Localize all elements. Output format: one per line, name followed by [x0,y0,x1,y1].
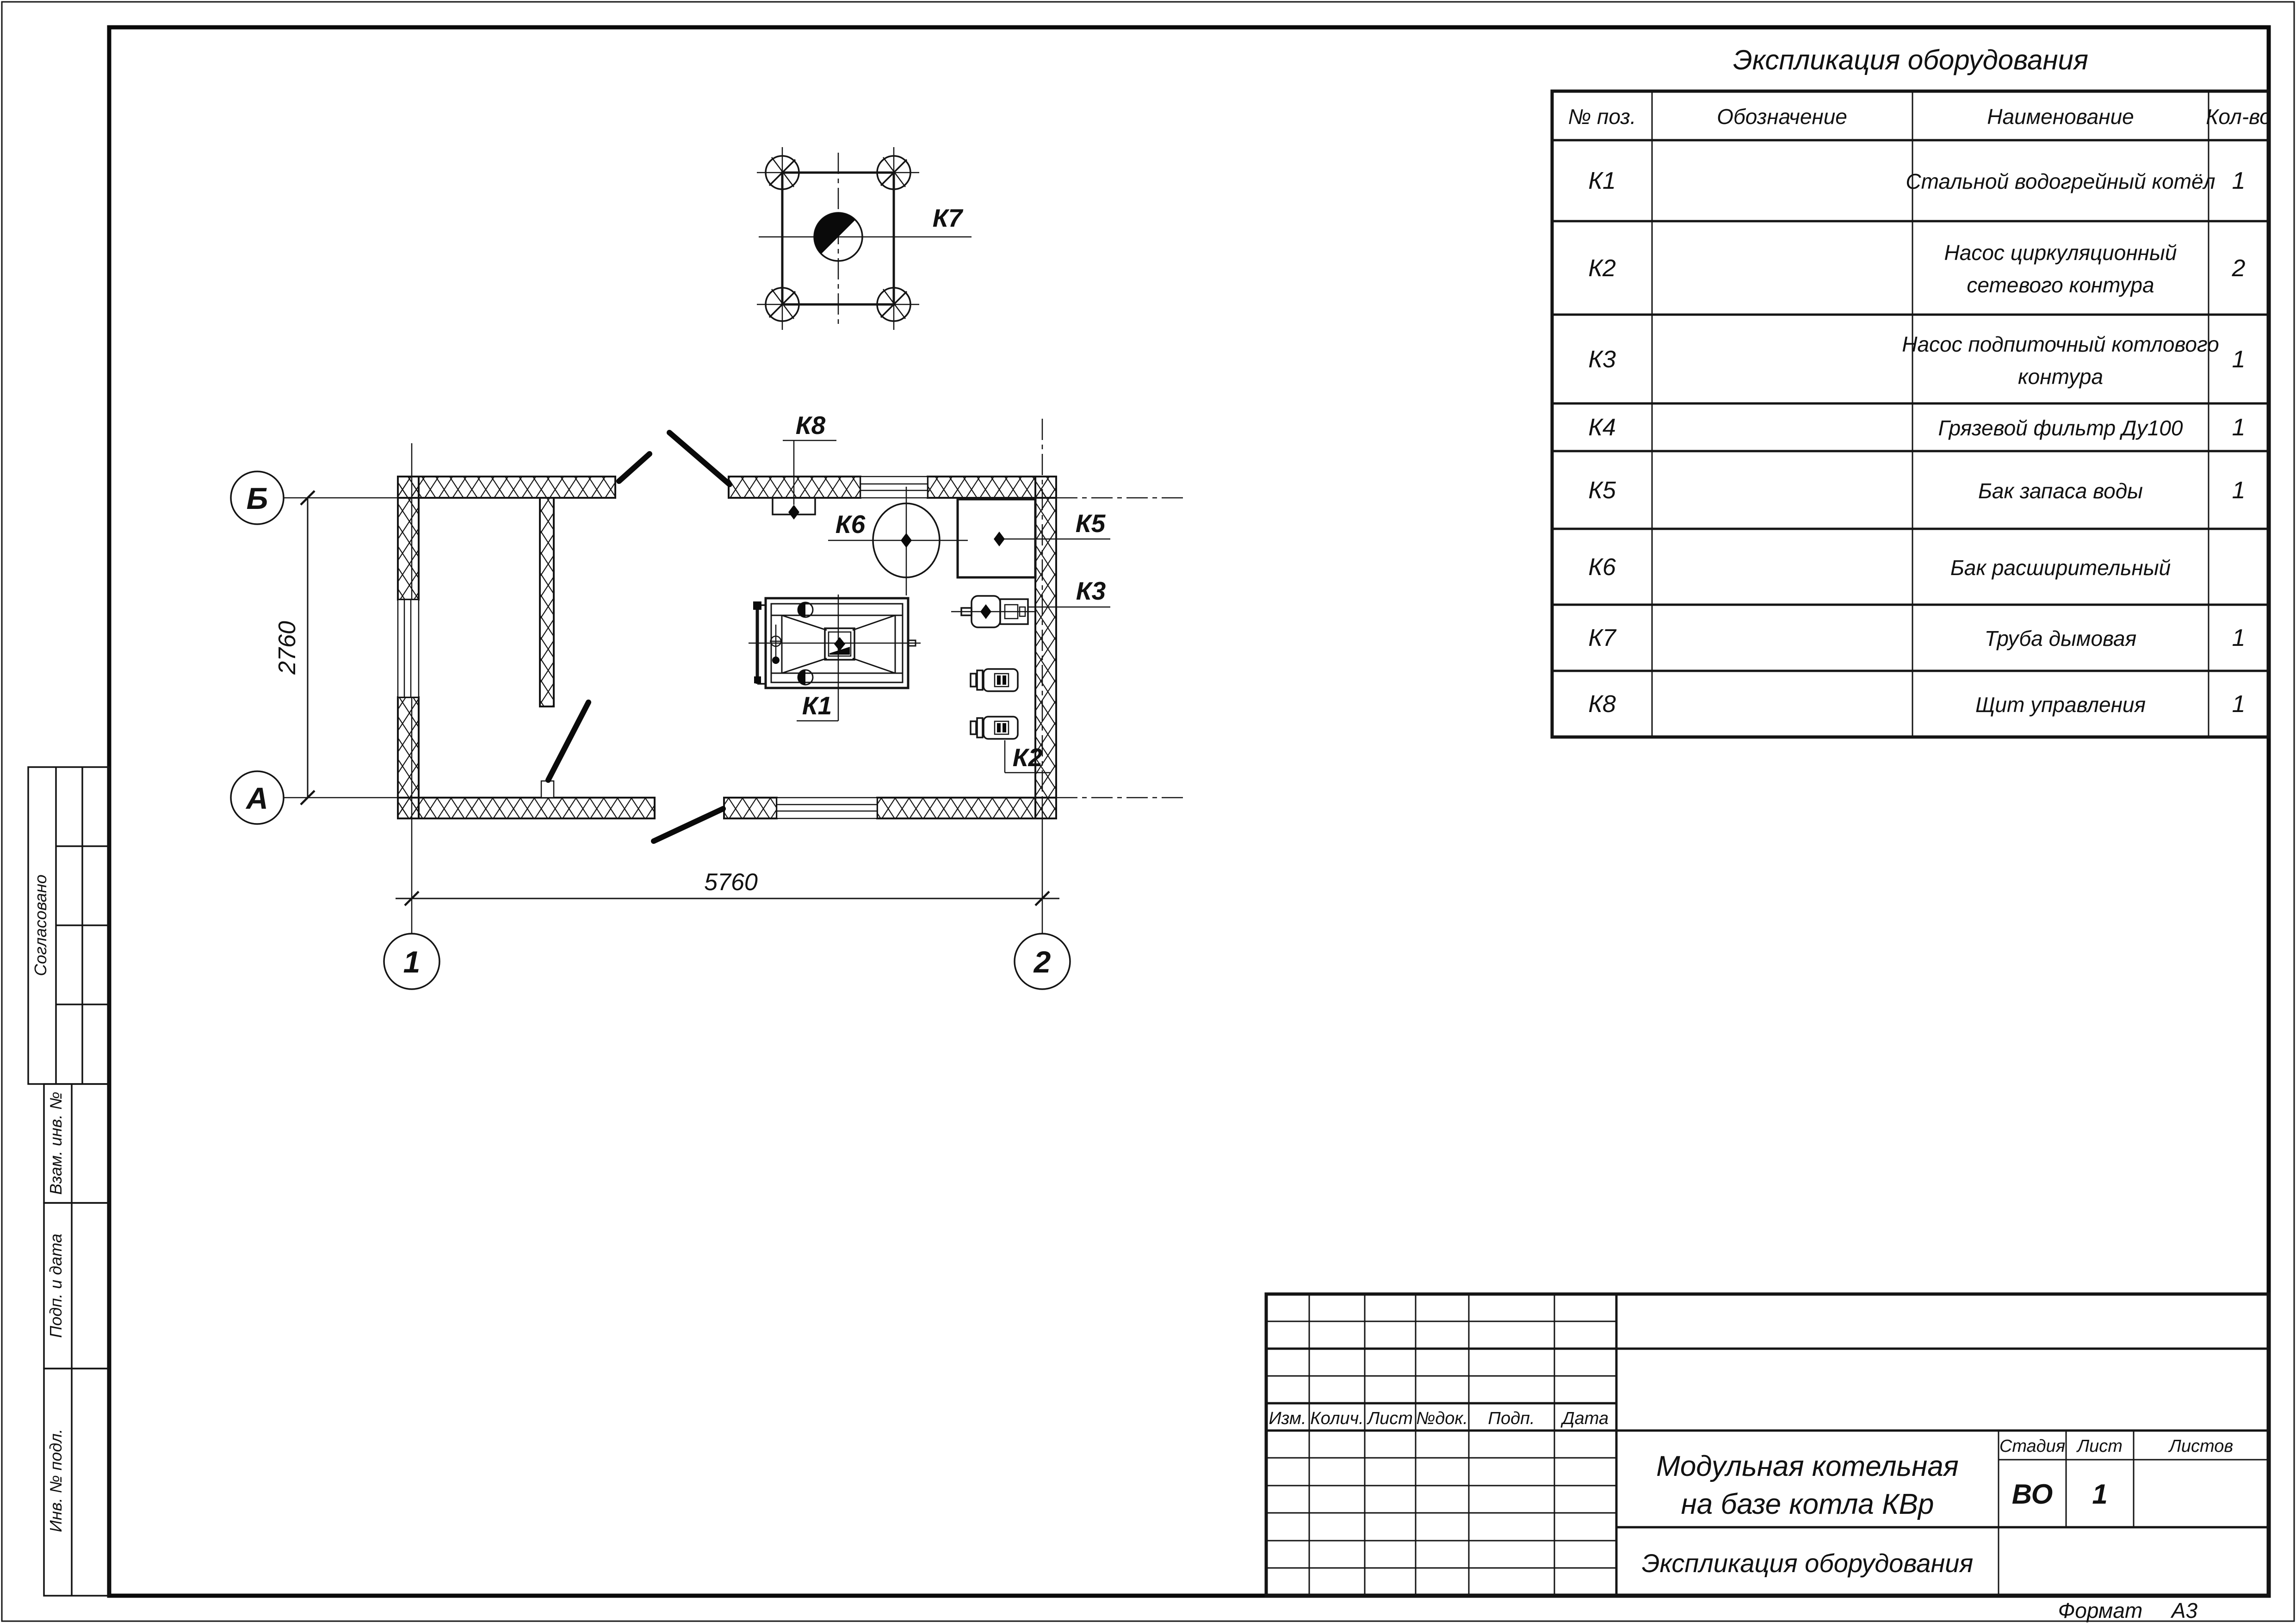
table-row: К6 Бак расширительный [1588,554,2171,581]
callout-k2: К2 [1013,743,1043,772]
wall-top-left [398,477,615,498]
row-name: Стальной водогрейный котёл [1906,169,2215,193]
equipment-table-title: Экспликация оборудования [1733,44,2088,75]
rev-header-list: Лист [1366,1409,1413,1428]
row-pos: К8 [1588,691,1616,718]
row-qty: 1 [2232,167,2246,194]
title-block: Изм. Колич. Лист №док. Подп. Дата Модуль… [1266,1294,2269,1596]
side-stamp: Согласовано Взам. инв. № Подп. и дата Ин… [28,767,109,1596]
row-pos: К2 [1588,255,1616,282]
control-panel-k8: К8 [773,411,836,520]
podp-data-label: Подп. и дата [46,1233,65,1338]
anchor-bolt-icon [868,147,919,198]
equipment-table: Экспликация оборудования № поз. Обозначе… [1552,44,2271,737]
svg-text:Б: Б [247,481,268,515]
row-name: Грязевой фильтр Ду100 [1938,416,2183,440]
stage-value: ВО [2012,1479,2053,1510]
window-left [398,600,419,697]
inv-podl-label: Инв. № подл. [46,1429,65,1532]
wall-left-upper [398,477,419,600]
row-pos: К5 [1588,477,1616,504]
door-leaf-bottom [654,809,723,841]
col-header-qty: Кол-во [2206,105,2271,129]
window-bottom [777,798,877,818]
callout-k7: К7 [933,204,964,232]
project-title-line2: на базе котла КВр [1681,1488,1934,1520]
pump-k2-2 [971,717,1018,739]
row-pos: К3 [1588,346,1616,373]
door-leaf-top-short [619,454,650,481]
boiler-k1: К1 [749,595,921,721]
row-pos: К7 [1588,625,1617,651]
chimney-detail-k7: К7 [757,147,972,330]
axis-bubble-2: 2 [1015,934,1070,989]
floor-plan: К8 К6 К5 К3 [231,411,1184,989]
cad-canvas: Согласовано Взам. инв. № Подп. и дата Ин… [0,0,2296,1623]
row-name: Труба дымовая [1985,626,2136,650]
anchor-bolt-icon [757,279,808,330]
approved-label: Согласовано [31,874,50,976]
expansion-tank-k6: К6 [828,487,968,595]
sheets-header: Листов [2168,1437,2233,1456]
row-pos: К6 [1588,554,1616,581]
sheet-header: Лист [2076,1437,2123,1456]
doc-title: Экспликация оборудования [1642,1549,1974,1578]
window-top [860,477,928,498]
sheet-value: 1 [2092,1479,2107,1510]
row-name: Щит управления [1975,693,2146,717]
row-pos: К1 [1588,167,1616,194]
anchor-bolt-icon [757,147,808,198]
row-pos: К4 [1588,414,1616,441]
callout-k6: К6 [835,510,866,539]
rev-header-kolich: Колич. [1310,1409,1363,1428]
callout-k1: К1 [802,691,832,720]
wall-top-mid [729,477,860,498]
door-jamb [541,781,554,798]
stage-header: Стадия [1999,1437,2065,1456]
door-leaf-interior [548,702,588,780]
col-header-designation: Обозначение [1717,105,1847,129]
table-row: К5 Бак запаса воды 1 [1588,477,2245,504]
row-qty: 1 [2232,477,2246,504]
svg-text:2: 2 [1033,945,1051,979]
col-header-name: Наименование [1987,105,2134,129]
callout-k8: К8 [796,411,826,440]
dimension-width: 5760 [396,869,1059,905]
callout-k5: К5 [1076,509,1106,538]
rev-header-ndok: №док. [1416,1409,1468,1428]
axis-bubble-b: Б [231,471,284,524]
table-row: К3 Насос подпиточный котлового контура 1 [1588,332,2245,389]
dim-5760: 5760 [704,869,758,896]
rev-header-podp: Подп. [1488,1409,1535,1428]
table-row: К7 Труба дымовая 1 [1588,625,2245,651]
door-leaf-top-long [669,433,730,484]
row-name: Бак запаса воды [1978,479,2143,503]
row-qty: 1 [2232,625,2246,651]
format-note: Формат А3 [2058,1598,2198,1623]
callout-k3: К3 [1076,576,1106,605]
vzam-inv-label: Взам. инв. № [46,1092,65,1195]
axis-bubble-1: 1 [384,934,439,989]
svg-text:1: 1 [403,945,421,979]
wall-bottom-left [398,798,655,818]
dimension-height: 2760 [274,491,315,805]
drawing-sheet: Согласовано Взам. инв. № Подп. и дата Ин… [0,0,2296,1623]
pump-k2-1 [971,669,1018,691]
pump-k3: К3 [951,576,1110,627]
water-tank-k5: К5 [958,499,1110,577]
row-name: Бак расширительный [1950,556,2171,580]
row-qty: 1 [2232,346,2246,373]
col-header-pos: № поз. [1568,105,1636,129]
svg-text:А: А [245,781,268,815]
wall-bottom-mid [724,798,777,818]
wall-bottom-right [877,798,1056,818]
anchor-bolt-icon [868,279,919,330]
row-name-line2: контура [2018,365,2103,389]
rev-header-data: Дата [1560,1409,1609,1428]
partition-wall [540,498,554,706]
format-value: А3 [2170,1598,2198,1623]
row-name-line1: Насос подпиточный котлового [1902,332,2219,356]
rev-header-izm: Изм. [1269,1409,1306,1428]
row-qty: 1 [2232,414,2246,441]
axis-bubble-a: А [231,771,284,824]
row-qty: 1 [2232,691,2246,718]
dim-2760: 2760 [274,621,301,675]
table-row: К4 Грязевой фильтр Ду100 1 [1588,414,2245,441]
project-title-line1: Модульная котельная [1656,1450,1959,1482]
wall-left-lower [398,697,419,818]
row-name-line2: сетевого контура [1967,273,2154,297]
table-row: К2 Насос циркуляционный сетевого контура… [1588,241,2245,297]
table-row: К8 Щит управления 1 [1588,691,2245,718]
table-row: К1 Стальной водогрейный котёл 1 [1588,167,2245,194]
row-name-line1: Насос циркуляционный [1944,241,2177,265]
row-qty: 2 [2232,255,2246,282]
format-word: Формат [2058,1598,2143,1623]
